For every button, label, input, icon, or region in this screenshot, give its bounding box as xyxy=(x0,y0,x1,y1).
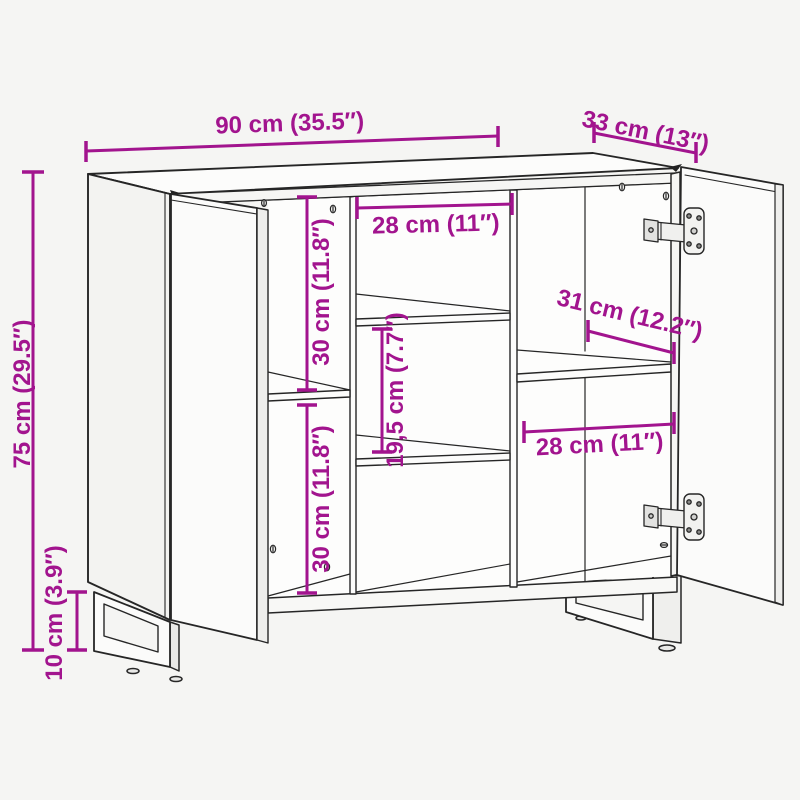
screw-icon xyxy=(663,192,668,200)
screw-icon xyxy=(262,200,267,207)
dim-left-upper-label: 30 cm (11.8″) xyxy=(308,218,335,366)
screw-icon xyxy=(270,545,275,553)
dim-shelf-spacing-label: 19,5 cm (7.7″) xyxy=(382,312,409,468)
partition-right xyxy=(510,190,517,587)
dim-middle-width-label: 28 cm (11″) xyxy=(372,209,500,239)
left-door xyxy=(170,190,268,643)
diagram-svg: 90 cm (35.5″) 33 cm (13″) 75 cm (29.5″) … xyxy=(0,0,800,800)
screw-icon xyxy=(619,183,624,191)
dim-leg-height-label: 10 cm (3.9″) xyxy=(41,545,68,681)
partition-left xyxy=(350,196,356,594)
left-side-panel xyxy=(88,174,170,620)
dim-height-label: 75 cm (29.5″) xyxy=(9,320,36,469)
screw-icon xyxy=(660,543,667,548)
dim-left-lower-label: 30 cm (11.8″) xyxy=(308,425,335,573)
screw-icon xyxy=(330,205,335,213)
dim-width-label: 90 cm (35.5″) xyxy=(215,107,365,139)
dimension-diagram: 90 cm (35.5″) 33 cm (13″) 75 cm (29.5″) … xyxy=(0,0,800,800)
